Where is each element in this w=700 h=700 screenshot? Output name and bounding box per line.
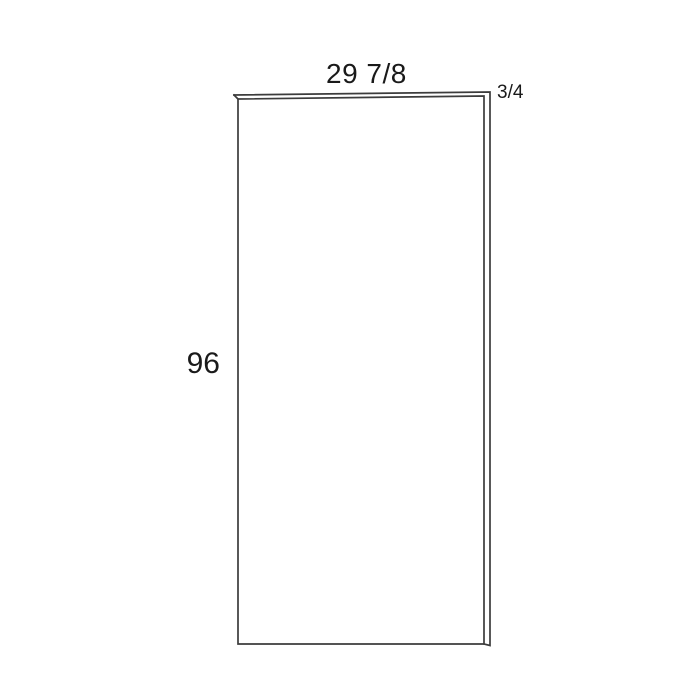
thickness-dimension-label: 3/4 — [497, 83, 523, 102]
panel-dimension-diagram: 29 7/8 96 3/4 — [0, 0, 700, 700]
panel-line-group — [234, 92, 490, 646]
panel-drawing — [0, 0, 700, 700]
panel-front-face — [238, 96, 484, 644]
height-dimension-label: 96 — [187, 349, 220, 379]
width-dimension-label: 29 7/8 — [326, 60, 402, 88]
